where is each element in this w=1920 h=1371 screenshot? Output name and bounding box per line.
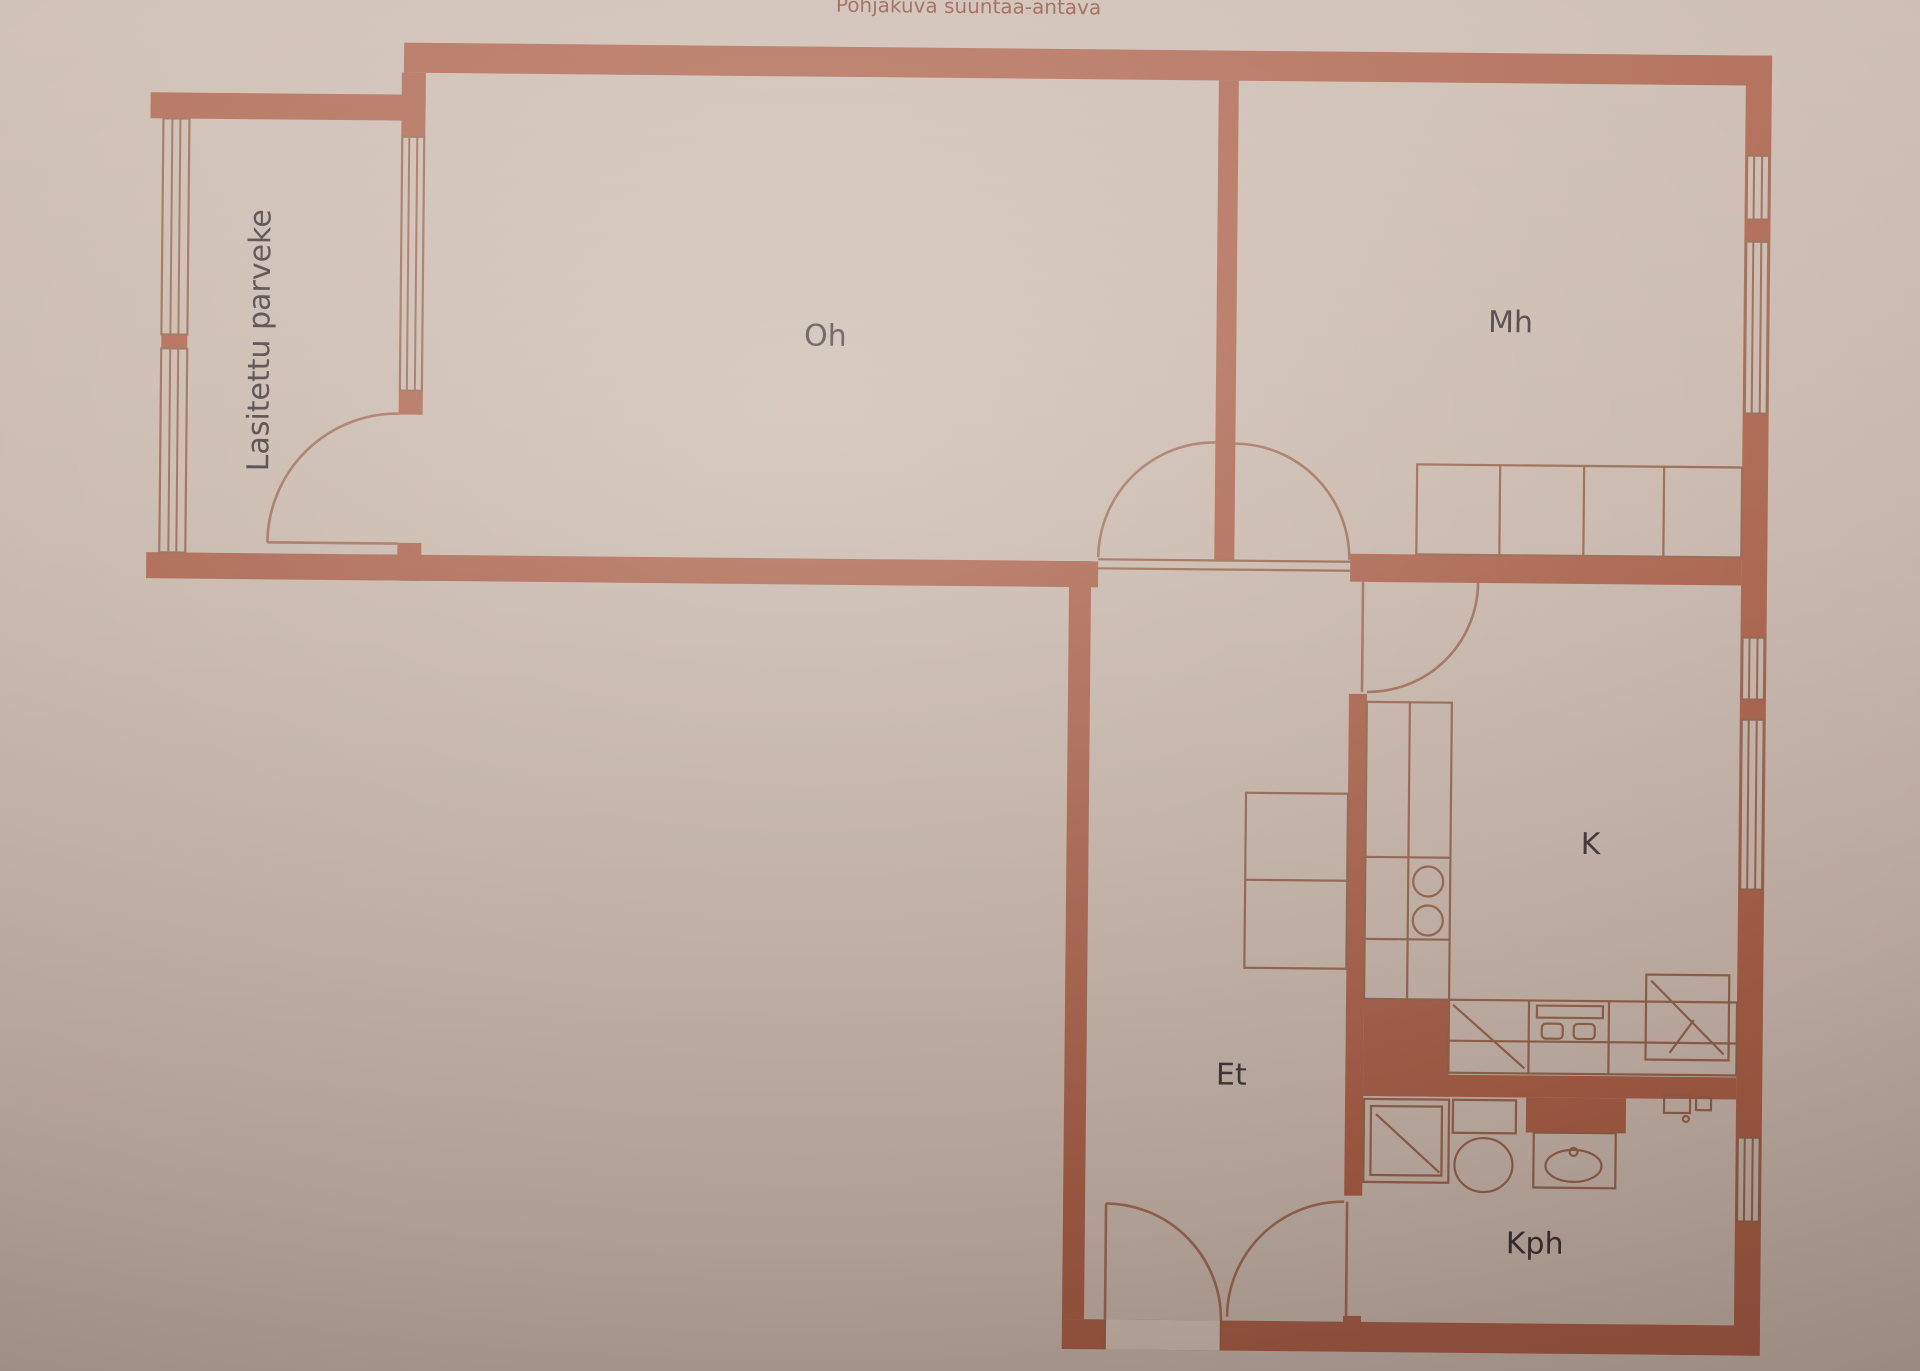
hall-doors-threshold-2 (1098, 568, 1350, 570)
living-room-door (1098, 441, 1215, 558)
wall-segment-living-bottom (146, 552, 1098, 587)
bathroom-door-arc (1227, 1201, 1344, 1318)
wall-segment-top (404, 43, 1772, 86)
plan-title: Pohjakuva suuntaa-antava (836, 0, 1102, 19)
stove-burner-icon (1413, 866, 1443, 896)
room-label-bathroom: Kph (1506, 1226, 1564, 1262)
dishwasher-icon (1452, 1005, 1525, 1069)
kitchen-sink (1537, 1006, 1603, 1040)
wall-segment-balcony-top (150, 92, 425, 121)
room-label-balcony: Lasitettu parveke (241, 209, 279, 471)
living-room-door-arc (1098, 441, 1215, 558)
bathroom-window (1737, 1137, 1760, 1221)
stove-burner-icon (1413, 905, 1443, 935)
bathroom-door (1227, 1195, 1362, 1318)
wall-segment-bath-corner-block (1363, 999, 1449, 1097)
room-label-living: Oh (804, 318, 847, 353)
bedroom-window (1745, 156, 1769, 414)
room-label-hall: Et (1216, 1057, 1247, 1092)
entrance-door-arc (1105, 1203, 1222, 1320)
balcony-door (267, 412, 422, 543)
bedroom-door (1234, 444, 1350, 560)
room-label-kitchen: K (1581, 827, 1602, 862)
windows (153, 118, 1769, 1221)
doors (260, 412, 1480, 1353)
washing-machine-icon (1363, 1099, 1449, 1183)
bedroom-wardrobe (1416, 464, 1742, 557)
entrance-door (1105, 1203, 1222, 1350)
kitchen-door (1349, 582, 1478, 695)
kitchen-door-arc (1367, 582, 1478, 693)
wall-segment-balcony-divider-mid (399, 391, 423, 415)
room-label-bedroom: Mh (1488, 305, 1533, 340)
wall-segment-bath-stub (1526, 1097, 1626, 1133)
kitchen-counter (1364, 702, 1452, 1000)
balcony-door-arc (267, 412, 398, 543)
floorplan-photo: Pohjakuva suuntaa-antava Oh Mh K Et Kph … (0, 0, 1920, 1371)
kitchen-window (1740, 638, 1764, 890)
wall-segment-hall-left (1062, 561, 1091, 1319)
wall-segment-living-bedroom-divider (1214, 80, 1239, 560)
balcony-living-window (400, 137, 424, 391)
walls (139, 40, 1772, 1356)
hall-closet (1244, 793, 1348, 969)
stove (1413, 866, 1444, 935)
washbasin-icon (1533, 1133, 1616, 1189)
toilet-icon (1452, 1100, 1516, 1193)
fridge-icon (1645, 975, 1729, 1061)
wall-segment-balcony-divider-upper (401, 73, 426, 137)
bedroom-door-arc (1234, 444, 1350, 560)
floorplan-drawing: Pohjakuva suuntaa-antava Oh Mh K Et Kph … (0, 0, 1920, 1371)
hall-doors-threshold (1098, 559, 1350, 561)
wall-segment-bedroom-bottom (1350, 554, 1741, 586)
wall-segment-balcony-divider-lower (397, 543, 421, 581)
wall-segment-balcony-glazing-mullion (161, 334, 187, 348)
